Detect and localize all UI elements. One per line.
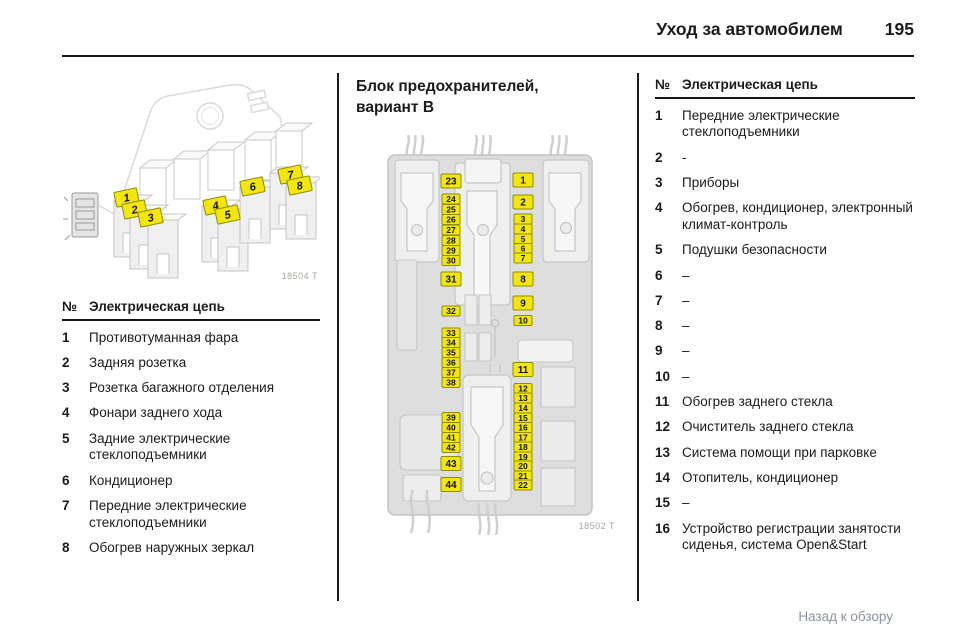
- svg-text:30: 30: [446, 256, 456, 266]
- fuse-label: 14: [514, 403, 532, 413]
- fuse-label: 37: [442, 368, 460, 378]
- svg-text:44: 44: [445, 480, 457, 491]
- row-circuit: Система помощи при парковке: [682, 445, 915, 462]
- row-circuit: Задняя розетка: [89, 355, 320, 372]
- table-row: 4Обогрев, кондиционер, электронный клима…: [655, 200, 915, 234]
- row-number: 4: [62, 405, 89, 422]
- table-row: 6–: [655, 268, 915, 285]
- row-circuit: Розетка багажного отделения: [89, 380, 320, 397]
- row-circuit: –: [682, 318, 915, 335]
- table-row: 6Кондиционер: [62, 473, 320, 490]
- row-circuit: Устройство регистрации занятости сиденья…: [682, 521, 915, 555]
- fuse-label: 24: [442, 194, 460, 204]
- table-body: 1Передние электрические стеклоподъемники…: [655, 108, 915, 555]
- row-number: 2: [62, 355, 89, 372]
- column-divider: [337, 73, 339, 601]
- svg-text:39: 39: [446, 413, 456, 423]
- table-row: 13Система помощи при парковке: [655, 445, 915, 462]
- row-number: 6: [62, 473, 89, 490]
- row-number: 11: [655, 394, 682, 411]
- svg-text:9: 9: [520, 299, 526, 310]
- fuse-label: 8: [513, 272, 533, 286]
- fuse-label: 22: [514, 480, 532, 490]
- col-number: №: [655, 77, 682, 92]
- svg-text:20: 20: [518, 461, 528, 471]
- svg-text:28: 28: [446, 236, 456, 246]
- row-number: 4: [655, 200, 682, 234]
- table-row: 5Подушки безопасности: [655, 242, 915, 259]
- table-row: 12Очиститель заднего стекла: [655, 419, 915, 436]
- fuse-label: 25: [442, 205, 460, 215]
- row-circuit: Обогрев наружных зеркал: [89, 540, 320, 557]
- table-row: 5Задние электрические стеклоподъемники: [62, 431, 320, 465]
- row-number: 10: [655, 369, 682, 386]
- svg-text:13: 13: [518, 393, 528, 403]
- table-row: 8–: [655, 318, 915, 335]
- fuse-box-figure: 2324252627282930313233343536373839404142…: [383, 135, 619, 535]
- row-number: 1: [62, 330, 89, 347]
- svg-text:27: 27: [446, 225, 456, 235]
- table-row: 11Обогрев заднего стекла: [655, 394, 915, 411]
- section-title: Блок предохранителей, вариант B: [356, 76, 622, 118]
- fuse-label: 30: [442, 256, 460, 266]
- table-row: 14Отопитель, кондиционер: [655, 470, 915, 487]
- fuse-label: 27: [442, 225, 460, 235]
- row-number: 7: [655, 293, 682, 310]
- row-circuit: Обогрев заднего стекла: [682, 394, 915, 411]
- svg-text:41: 41: [446, 433, 456, 443]
- row-number: 5: [62, 431, 89, 465]
- row-circuit: Задние электрические стеклоподъемники: [89, 431, 320, 465]
- row-circuit: Кондиционер: [89, 473, 320, 490]
- svg-text:40: 40: [446, 423, 456, 433]
- fuse-label: 4: [514, 224, 532, 234]
- svg-text:12: 12: [518, 384, 528, 394]
- row-number: 12: [655, 419, 682, 436]
- svg-text:15: 15: [518, 413, 528, 423]
- fuse-label: 41: [442, 433, 460, 443]
- table-row: 16Устройство регистрации занятости сиден…: [655, 521, 915, 555]
- fuse-label: 23: [441, 174, 461, 188]
- fuse-label: 5: [514, 234, 532, 244]
- svg-text:36: 36: [446, 358, 456, 368]
- row-circuit: –: [682, 369, 915, 386]
- row-number: 14: [655, 470, 682, 487]
- svg-text:4: 4: [521, 224, 526, 234]
- row-circuit: Передние электрические стеклоподъемники: [89, 498, 320, 532]
- table-row: 3Розетка багажного отделения: [62, 380, 320, 397]
- fuse-label: 7: [514, 253, 532, 263]
- row-number: 16: [655, 521, 682, 555]
- fuse-label: 31: [441, 272, 461, 286]
- table-row: 4Фонари заднего хода: [62, 405, 320, 422]
- row-circuit: Фонари заднего хода: [89, 405, 320, 422]
- row-circuit: Очиститель заднего стекла: [682, 419, 915, 436]
- svg-text:14: 14: [518, 403, 528, 413]
- row-number: 3: [655, 175, 682, 192]
- fuse-label: 35: [442, 348, 460, 358]
- row-number: 2: [655, 150, 682, 167]
- row-number: 15: [655, 495, 682, 512]
- table-row: 10–: [655, 369, 915, 386]
- row-circuit: -: [682, 150, 915, 167]
- figure-caption: 18504 T: [282, 271, 318, 281]
- header-rule: [62, 55, 914, 57]
- table-row: 2-: [655, 150, 915, 167]
- fuse-label: 44: [441, 478, 461, 492]
- table-row: 2Задняя розетка: [62, 355, 320, 372]
- fuse-label: 18: [514, 442, 532, 452]
- svg-text:25: 25: [446, 205, 456, 215]
- back-to-overview-link[interactable]: Назад к обзору: [798, 609, 893, 624]
- fuse-label: 15: [514, 413, 532, 423]
- svg-text:22: 22: [518, 480, 528, 490]
- svg-text:34: 34: [446, 338, 456, 348]
- row-circuit: –: [682, 293, 915, 310]
- fuse-label: 42: [442, 443, 460, 453]
- page-title: Уход за автомобилем: [656, 19, 843, 40]
- svg-text:8: 8: [520, 275, 526, 286]
- row-number: 1: [655, 108, 682, 142]
- svg-text:35: 35: [446, 348, 456, 358]
- svg-text:33: 33: [446, 328, 456, 338]
- svg-text:37: 37: [446, 368, 456, 378]
- svg-text:2: 2: [520, 198, 526, 209]
- svg-text:24: 24: [446, 194, 456, 204]
- svg-text:18: 18: [518, 442, 528, 452]
- row-number: 3: [62, 380, 89, 397]
- fuse-label: 32: [442, 306, 460, 316]
- row-circuit: –: [682, 495, 915, 512]
- svg-text:43: 43: [445, 459, 457, 470]
- section-title-line2: вариант B: [356, 97, 622, 118]
- fuse-label: 2: [513, 195, 533, 209]
- fuse-label: 13: [514, 393, 532, 403]
- fuse-label: 12: [514, 384, 532, 394]
- svg-text:5: 5: [521, 234, 526, 244]
- svg-text:11: 11: [518, 365, 529, 376]
- right-circuit-table: № Электрическая цепь 1Передние электриче…: [655, 77, 915, 554]
- row-number: 8: [62, 540, 89, 557]
- svg-text:23: 23: [445, 177, 457, 188]
- row-circuit: Противотуманная фара: [89, 330, 320, 347]
- fuse-label: 39: [442, 413, 460, 423]
- table-row: 1Передние электрические стеклоподъемники: [655, 108, 915, 142]
- col-number: №: [62, 299, 89, 314]
- svg-text:17: 17: [518, 433, 528, 443]
- row-circuit: Обогрев, кондиционер, электронный климат…: [682, 200, 915, 234]
- svg-text:10: 10: [518, 316, 528, 326]
- fuse-label: 11: [513, 363, 533, 377]
- row-number: 8: [655, 318, 682, 335]
- row-number: 13: [655, 445, 682, 462]
- table-row: 3Приборы: [655, 175, 915, 192]
- fuse-label: 6: [514, 244, 532, 254]
- svg-text:38: 38: [446, 378, 456, 388]
- svg-text:29: 29: [446, 246, 456, 256]
- manual-page: Уход за автомобилем 195: [0, 0, 954, 638]
- row-number: 6: [655, 268, 682, 285]
- fuse-label: 9: [513, 296, 533, 310]
- page-header: Уход за автомобилем 195: [62, 19, 914, 40]
- svg-text:31: 31: [445, 275, 457, 286]
- fuse-label: 1: [513, 173, 533, 187]
- fuse-label: 29: [442, 246, 460, 256]
- fuse-label: 34: [442, 338, 460, 348]
- svg-text:42: 42: [446, 443, 456, 453]
- fuse-label: 36: [442, 358, 460, 368]
- table-row: 15–: [655, 495, 915, 512]
- fuse-label: 20: [514, 461, 532, 471]
- fuse-label: 3: [514, 214, 532, 224]
- table-body: 1Противотуманная фара2Задняя розетка3Роз…: [62, 330, 320, 557]
- svg-text:32: 32: [446, 306, 456, 316]
- svg-text:1: 1: [520, 176, 526, 187]
- svg-text:3: 3: [521, 214, 526, 224]
- fuse-label: 38: [442, 378, 460, 388]
- table-row: 8Обогрев наружных зеркал: [62, 540, 320, 557]
- central-relay: [463, 375, 511, 501]
- row-circuit: Приборы: [682, 175, 915, 192]
- row-circuit: Передние электрические стеклоподъемники: [682, 108, 915, 142]
- table-row: 1Противотуманная фара: [62, 330, 320, 347]
- row-circuit: Подушки безопасности: [682, 242, 915, 259]
- col-circuit: Электрическая цепь: [89, 299, 225, 314]
- figure-caption: 18502 T: [579, 521, 615, 531]
- row-circuit: Отопитель, кондиционер: [682, 470, 915, 487]
- fuse-label: 26: [442, 215, 460, 225]
- fuse-label: 17: [514, 433, 532, 443]
- connector-icon: [63, 193, 114, 240]
- row-number: 5: [655, 242, 682, 259]
- table-header: № Электрическая цепь: [655, 77, 915, 99]
- page-number: 195: [885, 19, 914, 40]
- fuse-label: 28: [442, 236, 460, 246]
- table-header: № Электрическая цепь: [62, 299, 320, 321]
- fuse-label: 10: [514, 316, 532, 326]
- table-row: 7Передние электрические стеклоподъемники: [62, 498, 320, 532]
- col-circuit: Электрическая цепь: [682, 77, 818, 92]
- svg-text:7: 7: [521, 253, 526, 263]
- fuse-label: 43: [441, 457, 461, 471]
- svg-text:6: 6: [521, 244, 526, 254]
- row-number: 9: [655, 343, 682, 360]
- row-circuit: –: [682, 343, 915, 360]
- fuse-label: 33: [442, 328, 460, 338]
- svg-text:26: 26: [446, 215, 456, 225]
- fuse-label: 16: [514, 423, 532, 433]
- svg-text:16: 16: [518, 423, 528, 433]
- section-title-line1: Блок предохранителей,: [356, 76, 622, 97]
- row-circuit: –: [682, 268, 915, 285]
- row-number: 7: [62, 498, 89, 532]
- fuse-holder-figure: 12345678 18504 T: [62, 73, 320, 285]
- column-divider: [637, 73, 639, 601]
- table-row: 7–: [655, 293, 915, 310]
- fuse-label: 40: [442, 423, 460, 433]
- table-row: 9–: [655, 343, 915, 360]
- left-circuit-table: № Электрическая цепь 1Противотуманная фа…: [62, 299, 320, 557]
